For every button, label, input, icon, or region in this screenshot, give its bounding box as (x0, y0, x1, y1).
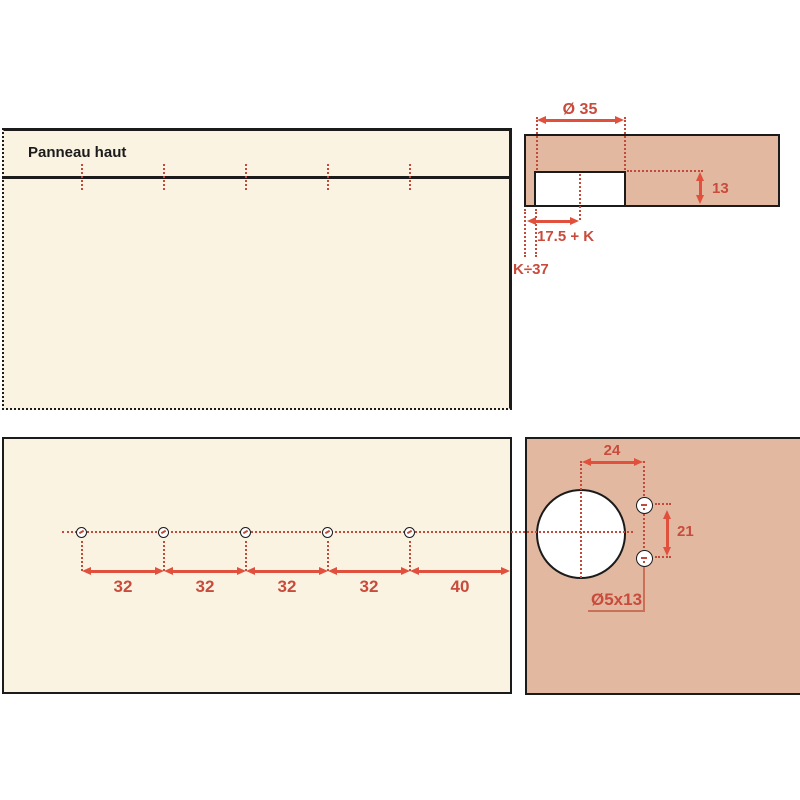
pitch21-arrow (666, 519, 669, 547)
spacing-label: 32 (103, 577, 143, 597)
dia35-dimension-arrow (546, 119, 615, 122)
hinge-position-tick (81, 164, 83, 190)
guide-line-cup-left (536, 117, 538, 170)
guide-line-cup-center (579, 174, 581, 220)
screw-hole-mark (643, 561, 645, 563)
leader-line-horizontal (588, 610, 645, 612)
hole-axis-dotted-line (62, 531, 633, 533)
hinge-reference-line (2, 176, 512, 179)
screw-hole-mark (641, 557, 647, 559)
spacing-label: 32 (349, 577, 389, 597)
guide-line-cup-right (624, 117, 626, 170)
spacing-label: 40 (440, 577, 480, 597)
guide-line-panel-edge (524, 209, 526, 257)
leader-line-vertical (643, 567, 645, 612)
screw-spec-label: Ø5x13 (591, 590, 642, 610)
bottom-panel (2, 437, 512, 694)
offset24-arrow (591, 461, 634, 464)
guide-line-cup-depth (627, 170, 703, 172)
depth13-arrow (699, 181, 702, 195)
screw-hole-mark (643, 508, 645, 510)
hinge-drilling-diagram: Panneau haut Ø 35 13 17.5 + K K÷37 (0, 0, 800, 800)
hinge-position-tick (327, 164, 329, 190)
hinge-position-tick (163, 164, 165, 190)
k-range-label: K÷37 (513, 261, 549, 278)
spacing-arrow (173, 570, 237, 573)
offset24-label: 24 (592, 442, 632, 459)
top-panel (2, 128, 512, 410)
screw-hole-axis-stub (655, 503, 671, 505)
spacing-label: 32 (185, 577, 225, 597)
cup-center-dotted-line (580, 461, 582, 578)
spacing-arrow (419, 570, 501, 573)
spacing-arrow (337, 570, 401, 573)
offset-label: 17.5 + K (537, 228, 594, 245)
offset-arrow (536, 220, 570, 223)
depth13-label: 13 (712, 180, 729, 197)
pitch21-label: 21 (677, 523, 694, 540)
dia35-label: Ø 35 (555, 101, 605, 119)
spacing-arrow (91, 570, 155, 573)
spacing-label: 32 (267, 577, 307, 597)
screw-hole-mark (641, 504, 647, 506)
hinge-position-tick (245, 164, 247, 190)
spacing-arrow (255, 570, 319, 573)
screw-hole-axis-stub (655, 556, 671, 558)
hinge-position-tick (409, 164, 411, 190)
top-panel-label: Panneau haut (28, 144, 126, 161)
